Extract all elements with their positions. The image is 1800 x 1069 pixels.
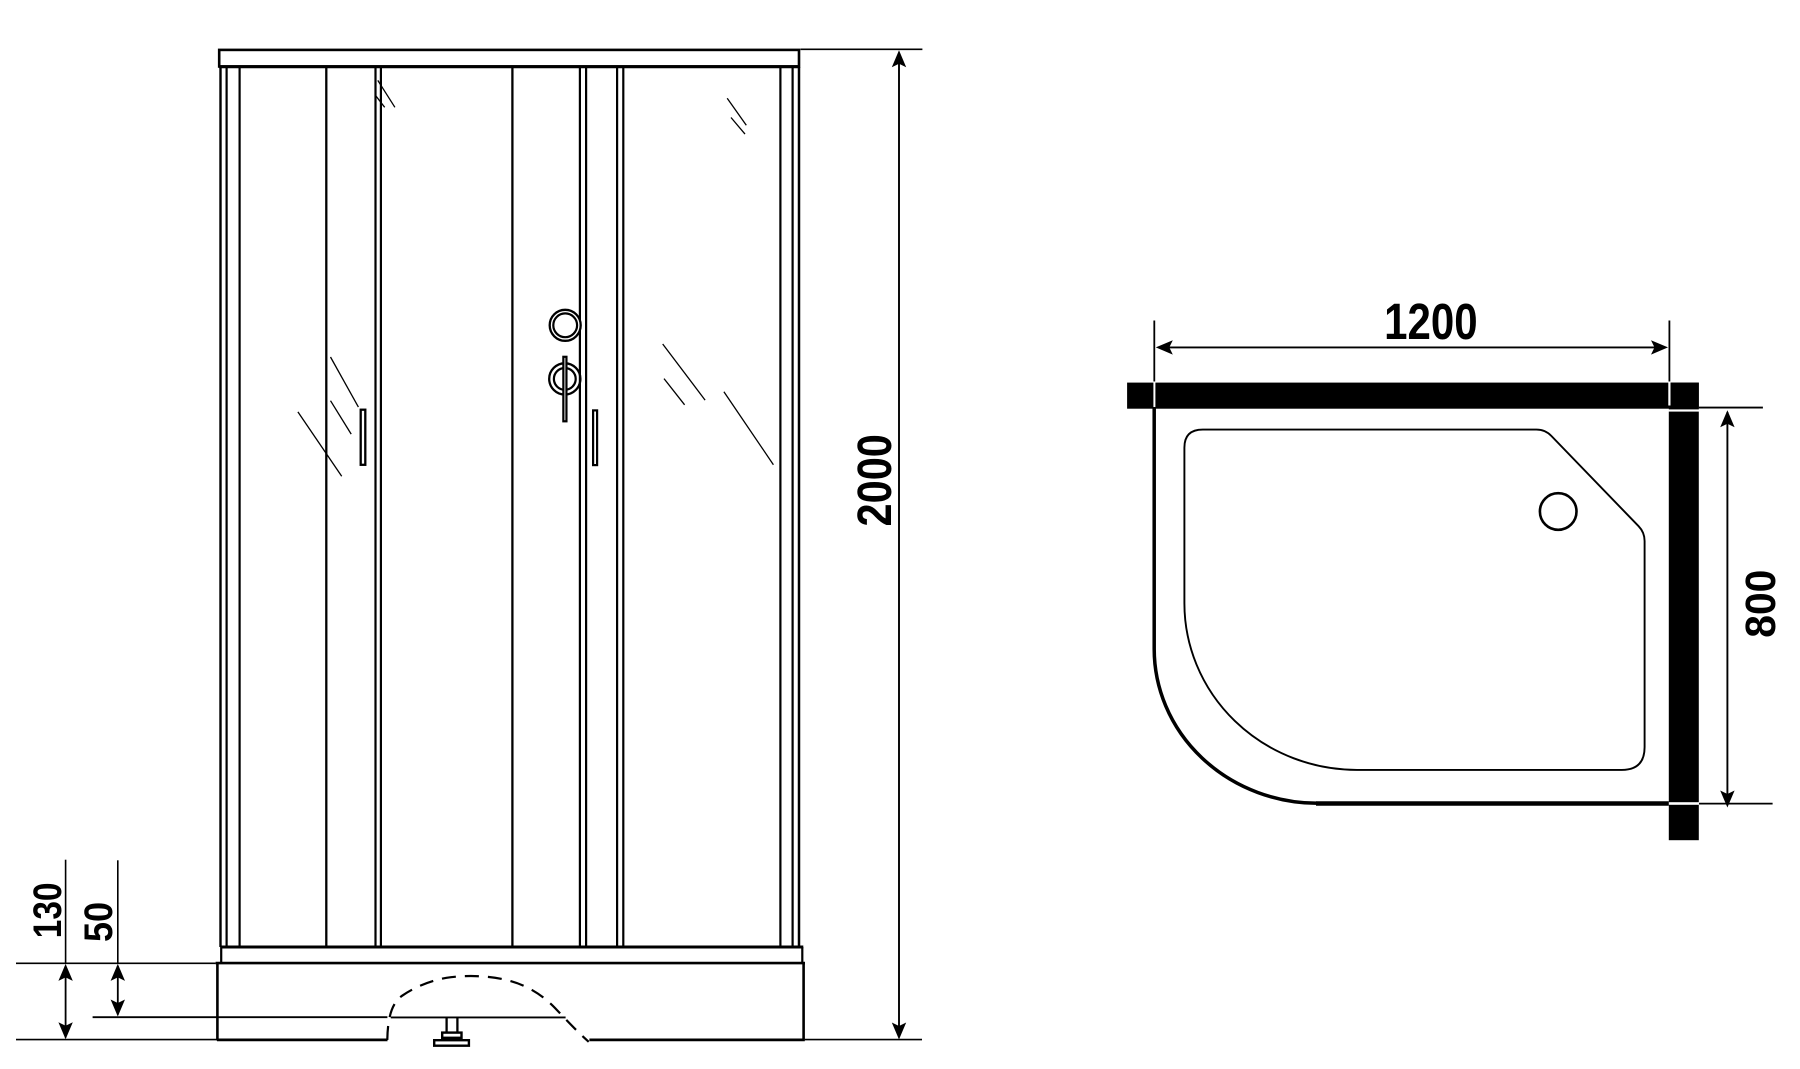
svg-text:50: 50: [77, 902, 121, 942]
svg-text:1200: 1200: [1384, 293, 1478, 350]
svg-text:2000: 2000: [849, 434, 902, 526]
svg-text:800: 800: [1737, 570, 1785, 638]
svg-text:130: 130: [26, 883, 70, 939]
